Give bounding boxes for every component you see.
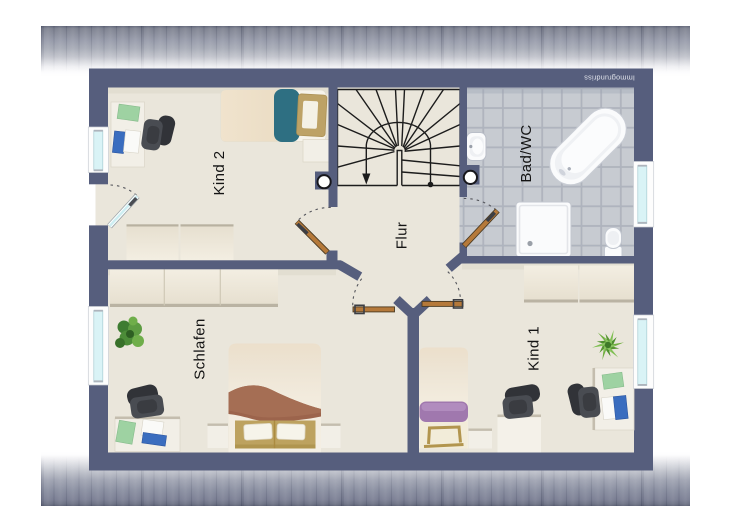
svg-text:Kind 2: Kind 2 bbox=[211, 151, 228, 196]
svg-text:Bad/WC: Bad/WC bbox=[518, 124, 535, 182]
svg-text:Immogrundriss: Immogrundriss bbox=[584, 74, 635, 83]
svg-text:Schlafen: Schlafen bbox=[192, 318, 209, 380]
svg-text:Flur: Flur bbox=[394, 222, 411, 249]
svg-text:Kind 1: Kind 1 bbox=[526, 326, 543, 371]
